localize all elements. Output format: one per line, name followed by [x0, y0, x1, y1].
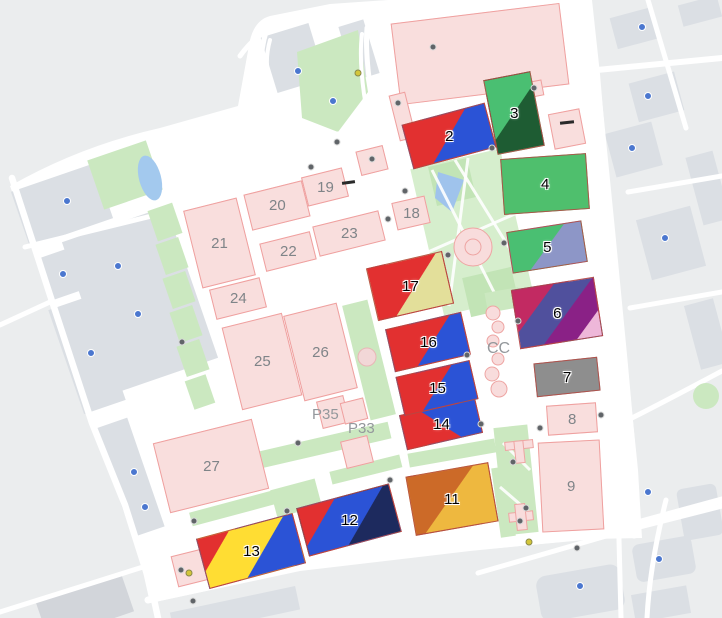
- hall-7[interactable]: 7: [533, 357, 600, 398]
- hall-21-label: 21: [211, 235, 228, 252]
- hall-3-label: 3: [510, 105, 518, 122]
- hall-9[interactable]: 9: [538, 439, 605, 532]
- hall-9-label: 9: [567, 478, 575, 495]
- p33-label: P33: [348, 420, 375, 437]
- congress-center-label: CC: [487, 340, 510, 358]
- p35-label: P35: [312, 406, 339, 423]
- hall-27-label: 27: [203, 458, 220, 475]
- hall-22-label: 22: [280, 243, 297, 260]
- hall-16-label: 16: [420, 334, 437, 351]
- hall-13-label: 13: [243, 543, 260, 560]
- hall-8-label: 8: [568, 411, 576, 428]
- hall-7-label: 7: [563, 369, 571, 386]
- hall-15-label: 15: [429, 380, 446, 397]
- map-canvas[interactable]: 18 19 20 21 22 23 24 25 26 27 8 9 2 3 4 …: [0, 0, 722, 618]
- hall-6-label: 6: [553, 305, 561, 322]
- hall-17-label: 17: [402, 278, 419, 295]
- hall-12-label: 12: [341, 512, 358, 529]
- hall-4[interactable]: 4: [500, 153, 590, 215]
- hall-26-label: 26: [312, 344, 329, 361]
- hall-24-label: 24: [230, 290, 247, 307]
- hall-4-label: 4: [541, 176, 549, 193]
- hall-20-label: 20: [269, 197, 286, 214]
- hall-11-label: 11: [444, 491, 460, 508]
- hall-14-label: 14: [433, 416, 450, 433]
- hall-19-label: 19: [317, 179, 334, 196]
- building-helipad[interactable]: [548, 108, 586, 149]
- hall-23-label: 23: [341, 225, 358, 242]
- hall-25-label: 25: [254, 353, 271, 370]
- hall-2-label: 2: [445, 128, 453, 145]
- tree-blob: [358, 348, 376, 366]
- hall-8[interactable]: 8: [546, 402, 598, 435]
- hall-18-label: 18: [403, 205, 420, 222]
- hall-5-label: 5: [543, 239, 551, 256]
